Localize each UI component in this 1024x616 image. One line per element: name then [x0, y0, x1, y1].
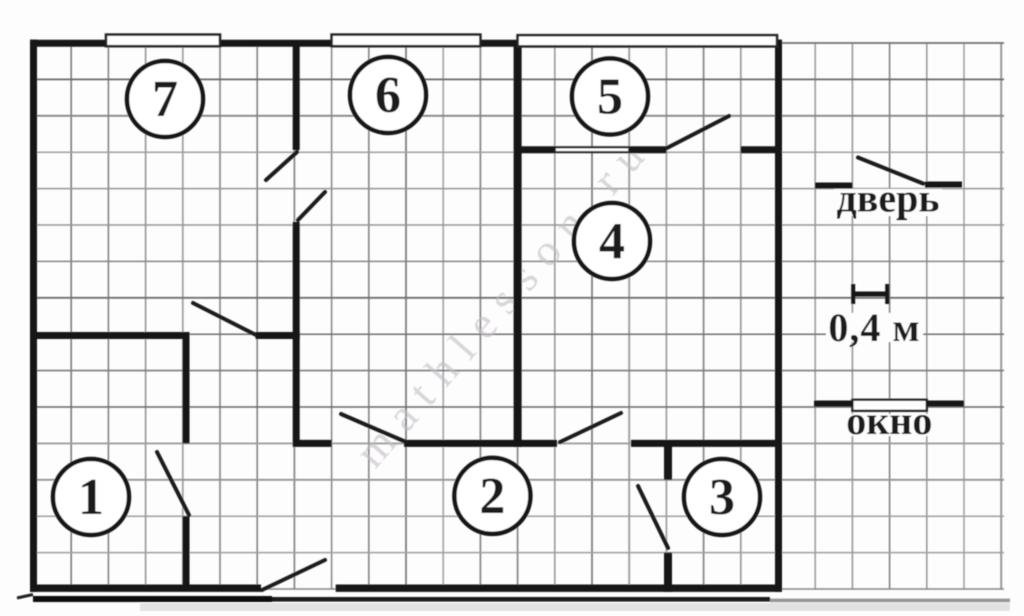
svg-text:0,4 м: 0,4 м	[828, 305, 920, 350]
svg-text:2: 2	[479, 468, 505, 525]
svg-text:окно: окно	[846, 398, 932, 443]
svg-text:дверь: дверь	[837, 176, 940, 221]
svg-text:3: 3	[709, 469, 735, 526]
svg-text:4: 4	[599, 213, 625, 270]
svg-text:7: 7	[152, 71, 178, 128]
svg-text:5: 5	[597, 69, 623, 126]
svg-text:1: 1	[78, 469, 104, 526]
svg-text:6: 6	[375, 67, 401, 124]
